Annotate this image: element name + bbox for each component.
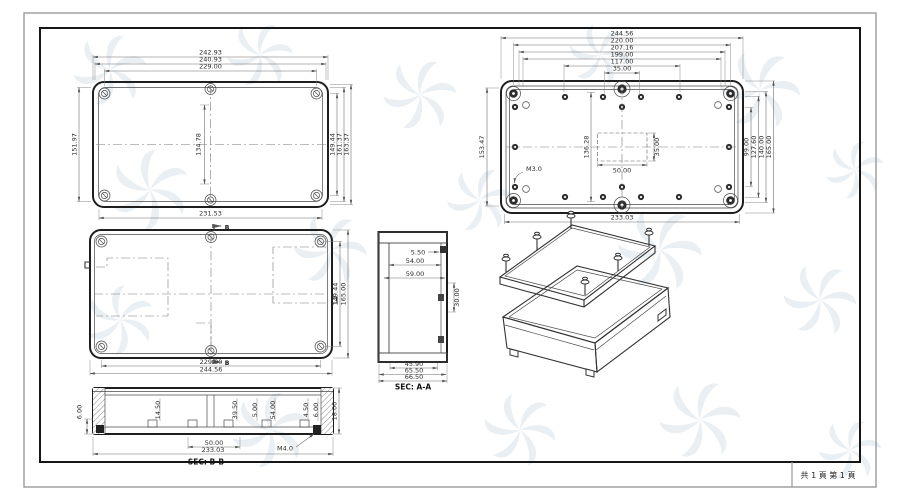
dim-label: 6.00 xyxy=(312,403,320,417)
view-section-aa: 5.50 54.00 59.00 30.00 45.90 65.50 66.50… xyxy=(379,232,462,392)
thread-note: M4.0 xyxy=(277,445,293,453)
dim-label: 233.03 xyxy=(611,214,634,222)
dim-label: 229.00 xyxy=(199,63,222,71)
dim-label: 163.37 xyxy=(343,133,351,156)
view-section-bb: 6.00 14.50 39.50 5.00 54.00 4.50 6.00 18… xyxy=(76,388,343,467)
view-lid-top: 242.93 240.93 229.00 151.97 134.78 149.4… xyxy=(71,49,354,221)
dim-label: 165.00 xyxy=(765,136,773,159)
dim-label: 134.78 xyxy=(195,133,203,156)
dim-label: 35.00 xyxy=(653,138,661,157)
thread-note: M3.0 xyxy=(526,165,542,173)
dim-label: 18.00 xyxy=(331,402,339,421)
section-label: SEC: A-A xyxy=(395,383,432,392)
dim-label: 165.00 xyxy=(340,283,348,306)
dim-label: 244.56 xyxy=(200,366,223,374)
view-base-bottom: 244.56 220.00 207.16 199.00 117.00 35.00… xyxy=(478,30,775,225)
dim-label: 153.47 xyxy=(478,136,486,159)
view-lid-inner: B B 149.44 165.00 229.00 244.56 xyxy=(85,225,350,376)
outer-border xyxy=(24,13,876,487)
section-marker: B xyxy=(225,225,230,232)
dim-label: 5.50 xyxy=(411,249,425,257)
dim-label: 136.28 xyxy=(583,136,591,159)
dim-label: 231.53 xyxy=(199,210,222,218)
drawing-sheet: 242.93 240.93 229.00 151.97 134.78 149.4… xyxy=(0,0,900,500)
dim-label: 30.00 xyxy=(453,288,461,307)
dim-label: 66.50 xyxy=(405,373,424,381)
dim-label: 233.03 xyxy=(202,446,225,454)
dim-label: 50.00 xyxy=(613,167,632,175)
dim-label: 4.50 xyxy=(302,403,310,417)
engineering-drawing: 242.93 240.93 229.00 151.97 134.78 149.4… xyxy=(0,0,900,500)
dim-label: 35.00 xyxy=(613,65,632,73)
section-label: SEC: B-B xyxy=(188,458,224,467)
dim-label: 14.50 xyxy=(154,401,162,420)
dim-label: 54.00 xyxy=(269,401,277,420)
dim-label: 5.00 xyxy=(251,403,259,417)
dim-label: 59.00 xyxy=(406,270,425,278)
dim-label: 54.00 xyxy=(406,257,425,265)
page-count-text: 共 1 頁 第 1 頁 xyxy=(801,470,856,480)
dim-label: 149.44 xyxy=(332,283,340,306)
dim-label: 6.00 xyxy=(76,405,84,419)
dim-label: 151.97 xyxy=(71,133,79,156)
dim-label: 39.50 xyxy=(231,401,239,420)
